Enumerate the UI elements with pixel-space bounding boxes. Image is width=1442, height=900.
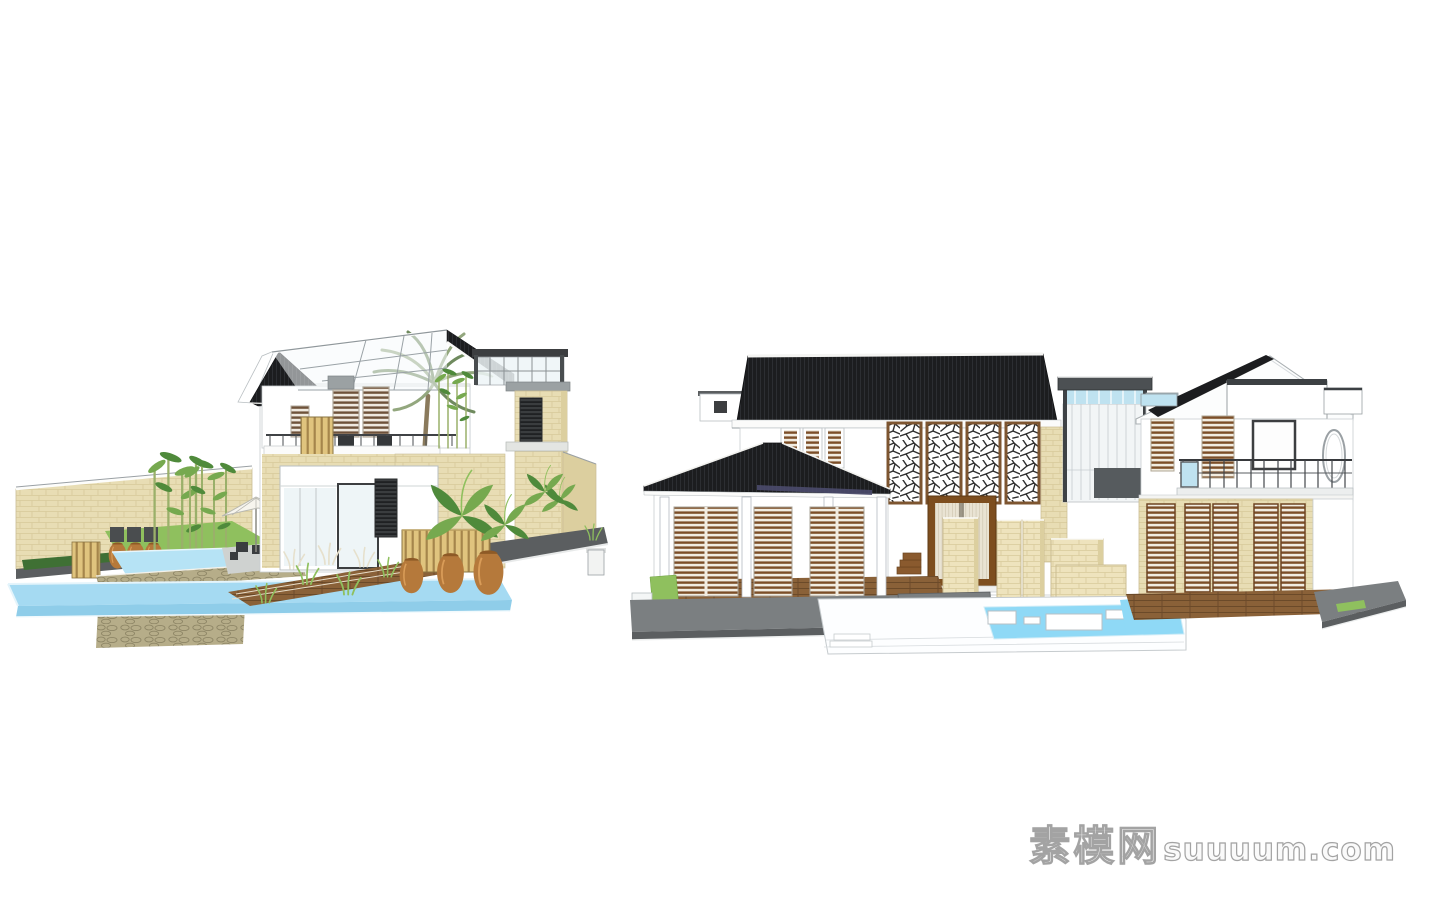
watermark-brand: 素模网 — [1029, 812, 1161, 872]
gray-fascia-box — [328, 376, 354, 389]
main-tile-roof — [732, 354, 1061, 428]
tower-dark-panel — [1094, 468, 1144, 498]
glass-atrium-roof — [272, 330, 447, 390]
louver-shutter — [1202, 416, 1234, 478]
scene-canvas: 素模网suuuum.com — [0, 0, 1442, 900]
stone-pier — [262, 468, 280, 568]
balcony-door — [1253, 421, 1295, 469]
watermark: 素模网suuuum.com — [1029, 812, 1396, 872]
rooftop-glass-room — [472, 349, 570, 391]
white-post — [588, 550, 604, 575]
pavilion-screens — [674, 507, 864, 596]
watermark-site: suuuum.com — [1163, 832, 1396, 868]
slat-doors — [1147, 504, 1305, 592]
stone-tower — [506, 391, 568, 547]
rooftop-box — [1227, 379, 1327, 419]
right-wing — [1120, 355, 1406, 632]
villa-right-rendering — [630, 354, 1406, 654]
right-cornice — [1324, 388, 1362, 414]
tower-louver-window — [520, 398, 542, 444]
oval-window — [1323, 430, 1345, 482]
wood-fence-left — [72, 542, 100, 578]
ground-floor-wall — [1139, 495, 1353, 594]
dark-louver-panel — [375, 479, 397, 537]
louver-shutter-left — [1151, 419, 1174, 471]
villa-left-rendering — [8, 330, 608, 648]
stone-pillars — [943, 518, 1126, 605]
glass-stair-tower — [1058, 377, 1152, 502]
architecture-rendering-svg — [0, 0, 1442, 900]
